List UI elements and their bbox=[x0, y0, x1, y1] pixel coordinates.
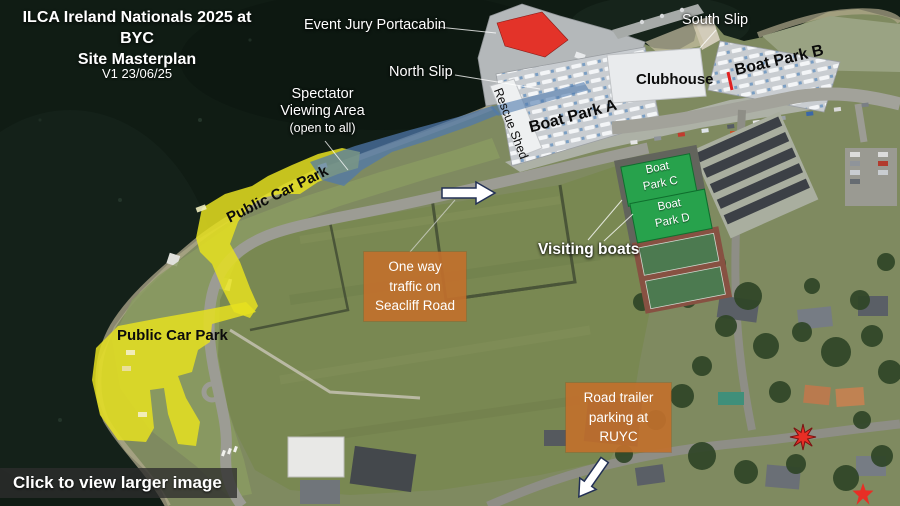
view-larger-image-button[interactable]: Click to view larger image bbox=[0, 468, 237, 498]
label-spectator-viewing-area: Spectator Viewing Area (open to all) bbox=[260, 86, 385, 136]
label-event-jury-portacabin: Event Jury Portacabin bbox=[304, 17, 446, 34]
label-public-car-park-lower: Public Car Park bbox=[117, 327, 228, 344]
version-text: V1 23/06/25 bbox=[8, 66, 266, 81]
one-way-line-3: Seacliff Road bbox=[368, 296, 462, 316]
label-clubhouse: Clubhouse bbox=[636, 71, 714, 88]
label-south-slip: South Slip bbox=[682, 12, 748, 29]
page-title: ILCA Ireland Nationals 2025 at BYC Site … bbox=[8, 8, 266, 70]
label-north-slip: North Slip bbox=[389, 64, 453, 81]
site-masterplan-image: ILCA Ireland Nationals 2025 at BYC Site … bbox=[0, 0, 900, 506]
star-burst-marker bbox=[790, 424, 816, 450]
one-way-line-2: traffic on bbox=[368, 277, 462, 297]
spectator-line-3: (open to all) bbox=[260, 121, 385, 136]
title-line-1: ILCA Ireland Nationals 2025 at BYC bbox=[8, 8, 266, 50]
one-way-callout: One way traffic on Seacliff Road bbox=[364, 252, 466, 321]
spectator-line-2: Viewing Area bbox=[260, 103, 385, 120]
one-way-line-1: One way bbox=[368, 257, 462, 277]
road-trailer-line-3: RUYC bbox=[570, 427, 667, 447]
label-visiting-boats: Visiting boats bbox=[538, 241, 639, 260]
road-trailer-line-1: Road trailer bbox=[570, 388, 667, 408]
road-trailer-line-2: parking at bbox=[570, 408, 667, 428]
road-trailer-callout: Road trailer parking at RUYC bbox=[566, 383, 671, 452]
spectator-line-1: Spectator bbox=[260, 86, 385, 103]
